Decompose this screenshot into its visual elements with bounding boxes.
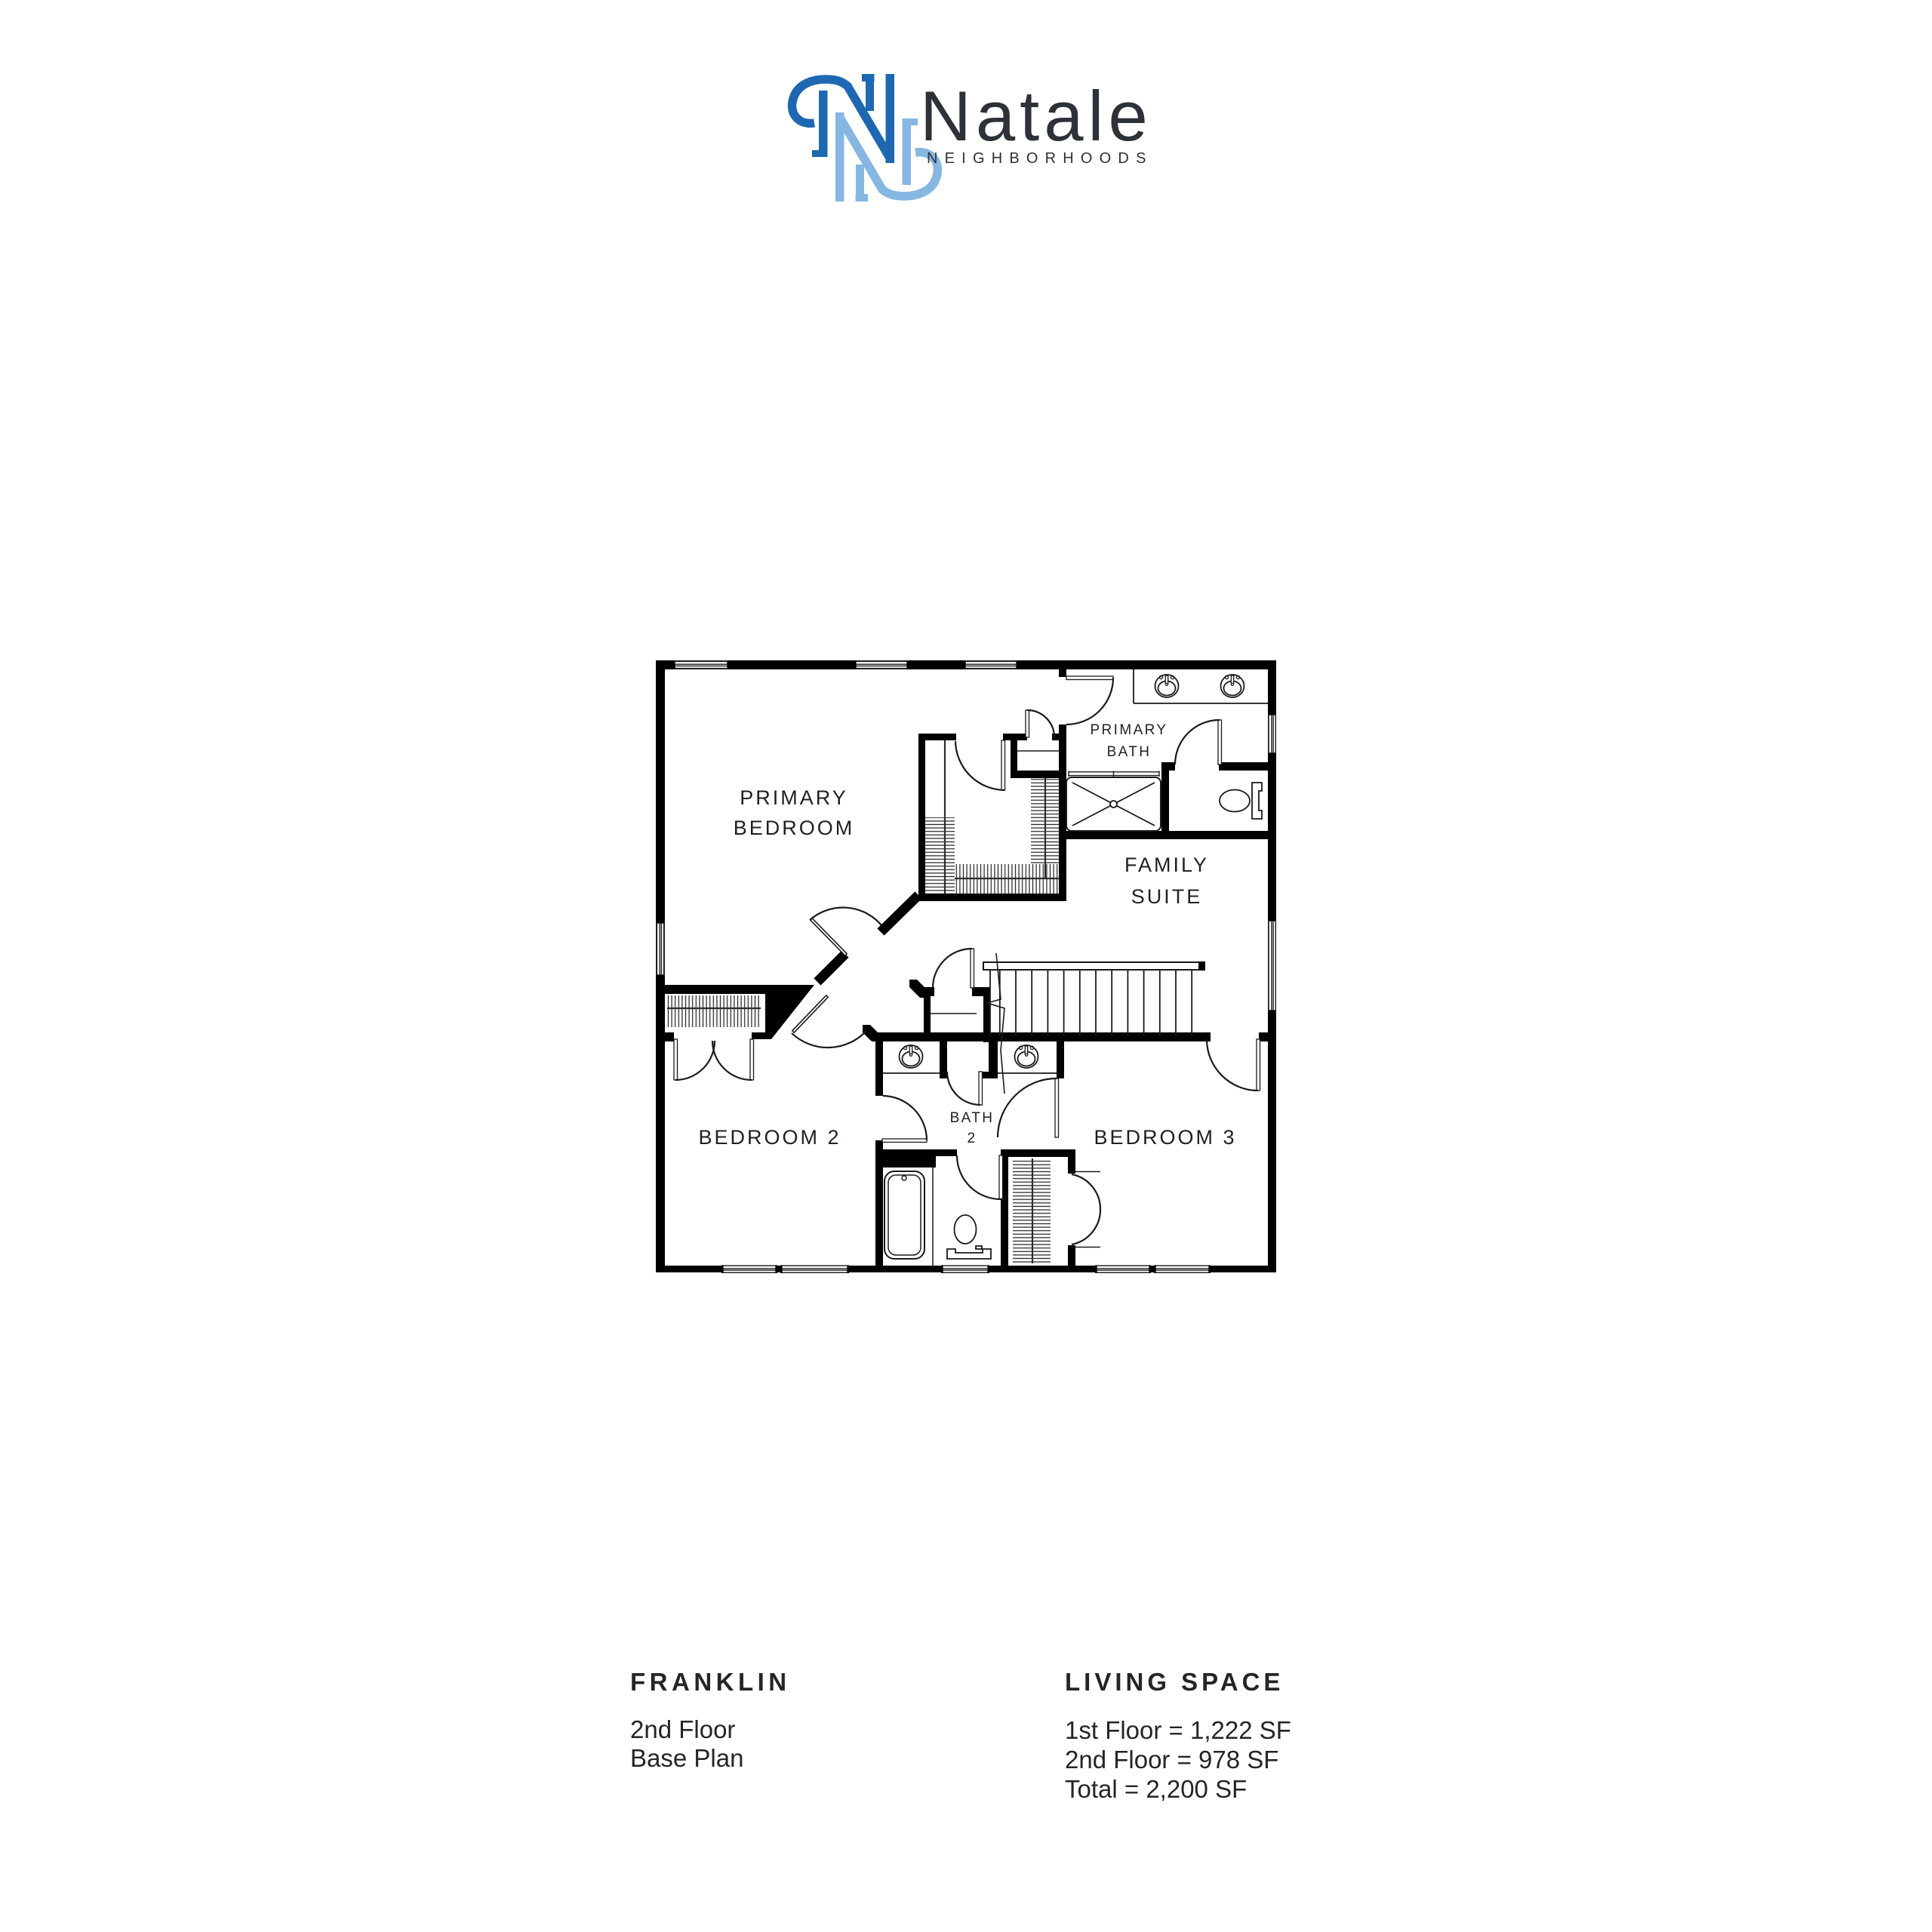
svg-text:Base Plan: Base Plan <box>630 1744 743 1772</box>
svg-text:BEDROOM 3: BEDROOM 3 <box>1094 1126 1236 1149</box>
svg-text:FRANKLIN: FRANKLIN <box>630 1668 791 1696</box>
svg-text:Total = 2,200 SF: Total = 2,200 SF <box>1065 1775 1247 1803</box>
svg-text:SUITE: SUITE <box>1131 885 1203 908</box>
svg-text:BATH: BATH <box>1107 744 1152 760</box>
svg-text:NEIGHBORHOODS: NEIGHBORHOODS <box>927 150 1153 167</box>
svg-text:LIVING SPACE: LIVING SPACE <box>1065 1668 1284 1696</box>
svg-text:1st Floor = 1,222 SF: 1st Floor = 1,222 SF <box>1065 1716 1291 1744</box>
svg-text:BEDROOM: BEDROOM <box>734 817 855 839</box>
svg-text:Natale: Natale <box>920 76 1152 155</box>
svg-text:2nd Floor: 2nd Floor <box>630 1715 735 1743</box>
svg-text:PRIMARY: PRIMARY <box>1090 722 1168 738</box>
svg-text:BEDROOM 2: BEDROOM 2 <box>698 1126 841 1149</box>
svg-text:BATH: BATH <box>950 1110 995 1126</box>
svg-text:2: 2 <box>968 1131 977 1146</box>
svg-text:PRIMARY: PRIMARY <box>740 786 848 809</box>
svg-text:2nd Floor = 978 SF: 2nd Floor = 978 SF <box>1065 1746 1278 1774</box>
svg-text:FAMILY: FAMILY <box>1124 854 1209 876</box>
